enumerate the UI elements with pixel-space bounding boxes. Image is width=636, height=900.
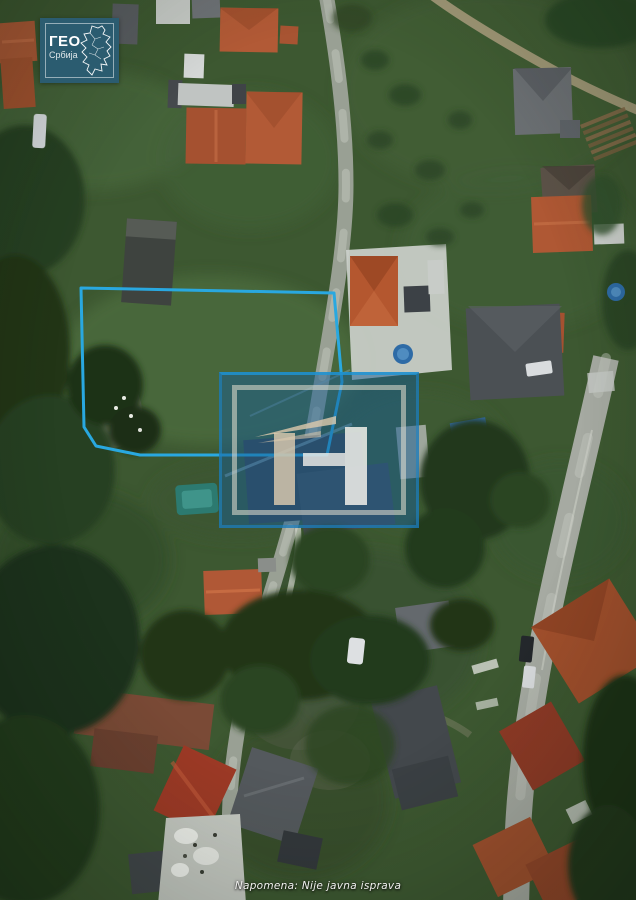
disclaimer-note: Napomena: Nije javna isprava: [0, 880, 636, 892]
serbia-map-icon: [79, 25, 113, 77]
logo-subtitle: Србија: [49, 51, 81, 60]
geosrbija-logo: ГЕО Србија: [40, 18, 119, 83]
watermark-logo: [222, 375, 422, 531]
logo-title: ГЕО: [49, 34, 81, 50]
logo-text: ГЕО Србија: [49, 34, 81, 60]
rgz-watermark: [219, 372, 419, 528]
map-viewport[interactable]: ГЕО Србија Napomena: Nije javna isprava: [0, 0, 636, 900]
